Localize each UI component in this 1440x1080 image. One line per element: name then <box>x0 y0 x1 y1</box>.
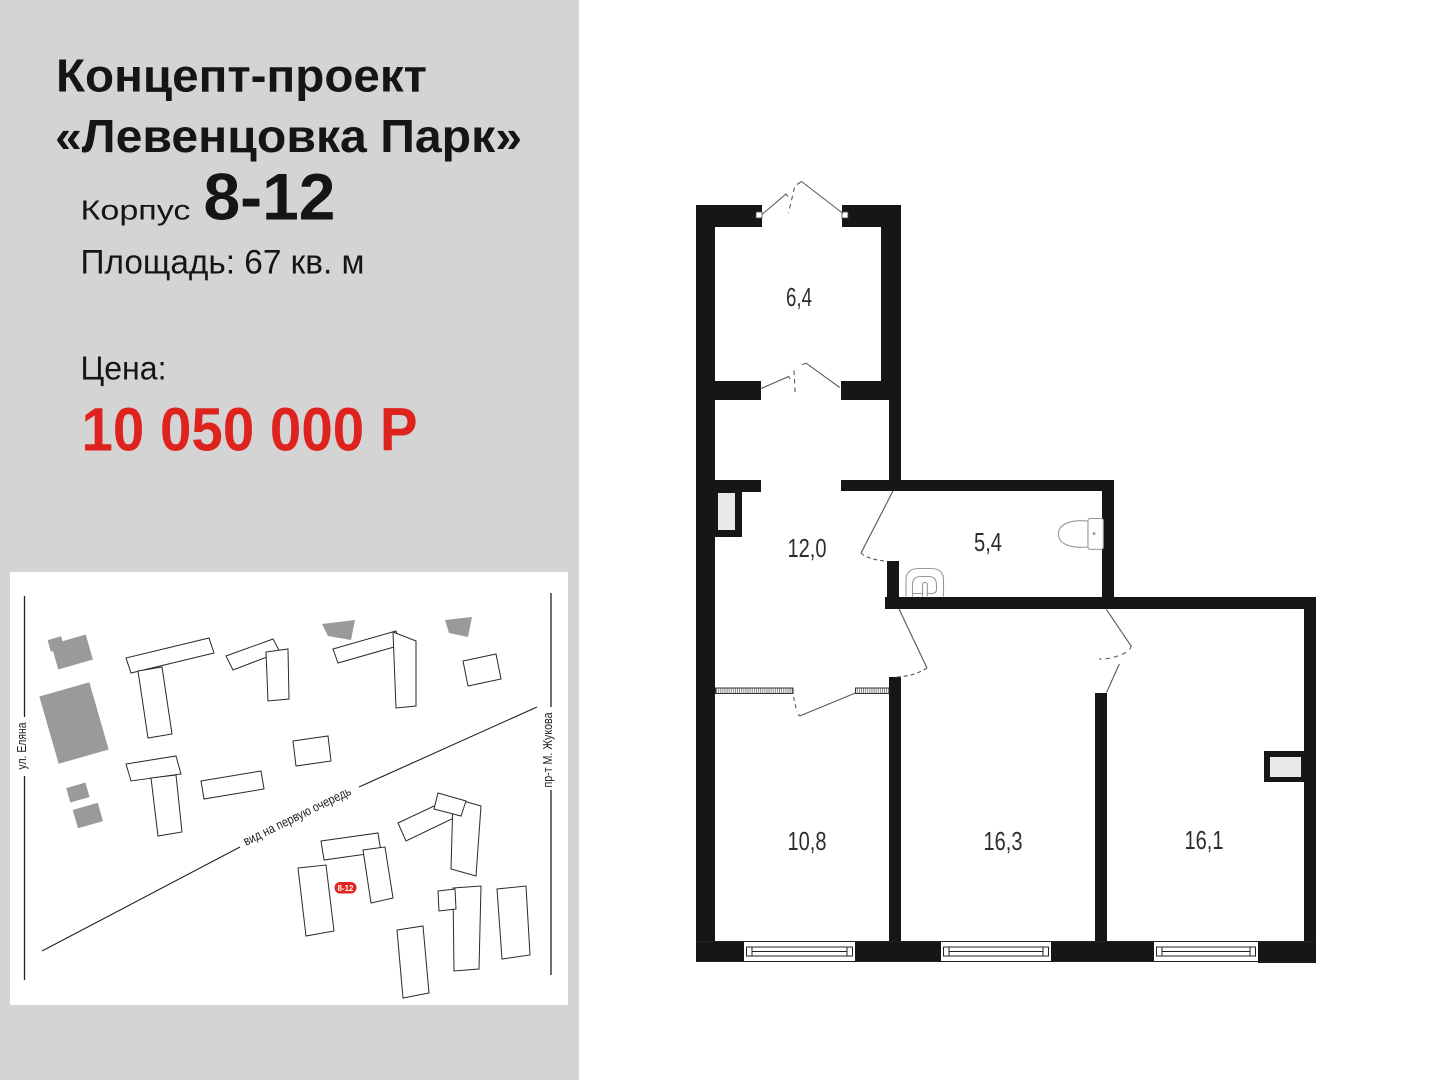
svg-text:12,0: 12,0 <box>788 533 827 563</box>
svg-text:10,8: 10,8 <box>788 826 827 856</box>
svg-text:6,4: 6,4 <box>786 282 812 312</box>
svg-text:16,3: 16,3 <box>984 826 1023 856</box>
svg-text:16,1: 16,1 <box>1185 825 1224 855</box>
svg-text:5,4: 5,4 <box>974 527 1002 557</box>
